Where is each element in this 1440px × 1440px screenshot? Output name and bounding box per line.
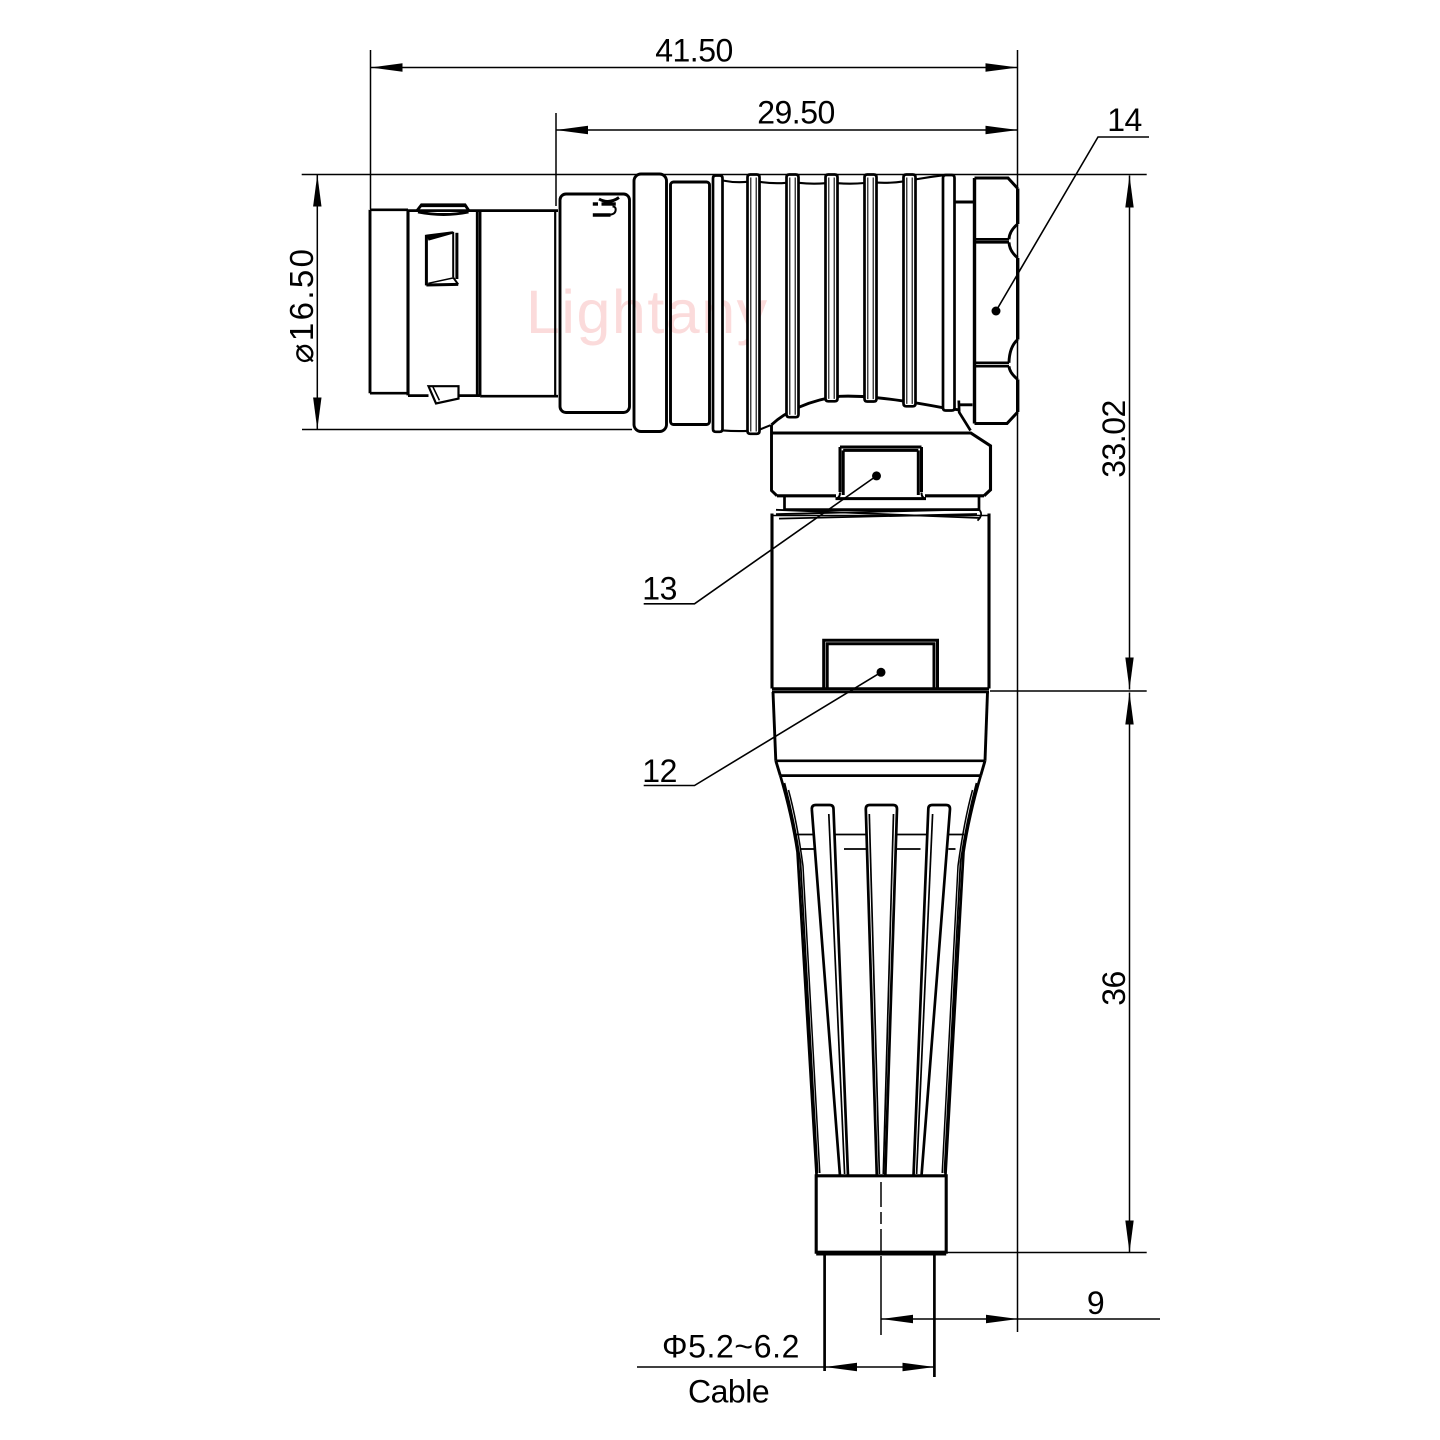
svg-text:12: 12 xyxy=(642,753,677,789)
svg-text:33.02: 33.02 xyxy=(1096,400,1132,478)
svg-text:⌀16.50: ⌀16.50 xyxy=(283,247,320,364)
svg-text:Cable: Cable xyxy=(688,1374,769,1410)
svg-text:41.50: 41.50 xyxy=(655,33,733,69)
svg-text:Φ5.2~6.2: Φ5.2~6.2 xyxy=(662,1329,800,1365)
svg-text:9: 9 xyxy=(1087,1285,1104,1321)
svg-text:14: 14 xyxy=(1107,102,1142,138)
svg-text:36: 36 xyxy=(1096,971,1132,1006)
svg-text:29.50: 29.50 xyxy=(757,95,835,131)
svg-text:13: 13 xyxy=(642,571,677,607)
svg-text:Lightany: Lightany xyxy=(526,278,769,346)
